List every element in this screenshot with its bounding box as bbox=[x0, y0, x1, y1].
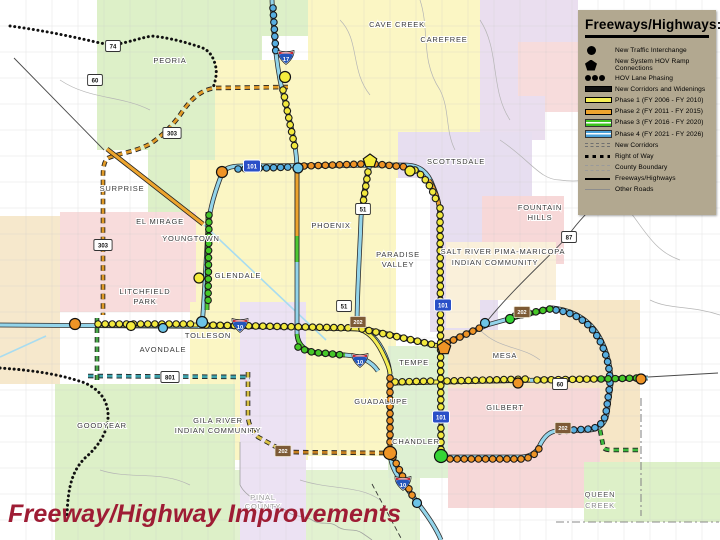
county-legend-symbol bbox=[585, 165, 615, 171]
interchange-l202-red2 bbox=[506, 315, 515, 324]
legend-item-label: County Boundary bbox=[615, 164, 667, 171]
pentagon-swatch bbox=[585, 60, 597, 71]
minor-road bbox=[650, 300, 720, 315]
dbl-swatch bbox=[585, 119, 612, 127]
legend-item-label: Phase 1 (FY 2006 - FY 2010) bbox=[615, 97, 704, 104]
legend-item: County Boundary bbox=[585, 162, 711, 173]
circle-legend-symbol bbox=[585, 46, 615, 55]
interchange-l101-l202 bbox=[435, 450, 448, 463]
shield-part: 60 bbox=[557, 382, 564, 388]
place-label-fountain: FOUNTAIN bbox=[518, 203, 562, 212]
brown-shield-202: 202 bbox=[275, 446, 291, 457]
place-label-carefree: CAREFREE bbox=[420, 35, 467, 44]
dots-swatch bbox=[585, 155, 610, 159]
legend-item: Right of Way bbox=[585, 151, 711, 162]
legend-item-label: New Corridors and Widenings bbox=[615, 86, 705, 93]
place-label-youngtown: YOUNGTOWN bbox=[162, 234, 219, 243]
dbl-legend-symbol bbox=[585, 119, 615, 127]
brown-shield-202: 202 bbox=[514, 307, 530, 318]
legend-item: Phase 1 (FY 2006 - FY 2010) bbox=[585, 95, 711, 106]
shield-part: 87 bbox=[566, 235, 573, 241]
legend-item-label: Other Roads bbox=[615, 186, 653, 193]
interchange-l202-red1 bbox=[481, 319, 490, 328]
interchange-l101-nw bbox=[217, 167, 228, 178]
dashes-swatch bbox=[585, 142, 610, 149]
dashes-legend-symbol bbox=[585, 142, 615, 149]
place-label-surprise: SURPRISE bbox=[100, 184, 145, 193]
bar-legend-symbol bbox=[585, 109, 615, 115]
legend-item-label: Phase 3 (FY 2016 - FY 2020) bbox=[615, 119, 704, 126]
beads-legend-symbol bbox=[585, 75, 615, 81]
shield-part: 303 bbox=[98, 243, 109, 249]
brown-shield-202: 202 bbox=[555, 423, 571, 434]
interchange-us60-mid bbox=[513, 378, 523, 388]
interchange-i10-se bbox=[413, 499, 422, 508]
place-label-el-mirage: EL MIRAGE bbox=[136, 217, 184, 226]
far-west-peach bbox=[0, 216, 60, 384]
legend-item: Other Roads bbox=[585, 184, 711, 195]
place-label-peoria: PEORIA bbox=[153, 56, 186, 65]
legend-item: Phase 3 (FY 2016 - FY 2020) bbox=[585, 117, 711, 128]
place-label-queen: QUEEN bbox=[585, 490, 616, 499]
interchange-i10-l202 bbox=[384, 447, 397, 460]
state-shield-51: 51 bbox=[337, 301, 352, 312]
beads-swatch bbox=[585, 75, 605, 81]
shield-part: 801 bbox=[165, 375, 176, 381]
legend-item: New Corridors and Widenings bbox=[585, 84, 711, 95]
place-label-gila-river: GILA RIVER bbox=[193, 416, 243, 425]
shield-part: 101 bbox=[438, 303, 449, 309]
interchange-l101-west bbox=[194, 273, 204, 283]
place-label-goodyear: GOODYEAR bbox=[77, 421, 127, 430]
shield-part: 202 bbox=[278, 449, 287, 455]
dots-legend-symbol bbox=[585, 155, 615, 159]
legend-item-label: Freeways/Highways bbox=[615, 175, 676, 182]
bar-swatch bbox=[585, 109, 612, 115]
interchange-l101-pima bbox=[405, 166, 415, 176]
shield-part: 202 bbox=[517, 310, 526, 316]
state-shield-74: 74 bbox=[106, 41, 121, 52]
state-shield-87: 87 bbox=[562, 232, 577, 243]
legend-item: New Corridors bbox=[585, 140, 711, 151]
place-label-salt-river-pima-maricopa: SALT RIVER PIMA-MARICOPA bbox=[441, 247, 566, 256]
interchange-i10-w2 bbox=[127, 322, 136, 331]
legend-item: Phase 2 (FY 2011 - FY 2015) bbox=[585, 106, 711, 117]
place-label-indian-community: INDIAN COMMUNITY bbox=[175, 426, 262, 435]
state-shield-60: 60 bbox=[88, 75, 103, 86]
gilbert-area bbox=[448, 388, 600, 508]
thinner-swatch bbox=[585, 189, 610, 190]
legend-item-label: Phase 4 (FY 2021 - FY 2026) bbox=[615, 131, 704, 138]
interchange-l101-i10 bbox=[197, 317, 208, 328]
legend-rule bbox=[585, 35, 709, 38]
bar-swatch bbox=[585, 97, 612, 103]
thin-swatch bbox=[585, 178, 610, 180]
legend-panel: Freeways/Highways: New Traffic Interchan… bbox=[578, 10, 716, 215]
interchange-i17-north bbox=[280, 72, 291, 83]
legend-item: New System HOV Ramp Connections bbox=[585, 58, 711, 73]
shield-part: 202 bbox=[353, 320, 362, 326]
place-label-cave-creek: CAVE CREEK bbox=[369, 20, 425, 29]
bar-legend-symbol bbox=[585, 86, 615, 92]
interchange-i10-w3 bbox=[159, 324, 168, 333]
shield-part: 10 bbox=[357, 360, 363, 366]
legend-title: Freeways/Highways: bbox=[585, 17, 711, 32]
bar-swatch bbox=[585, 86, 612, 92]
legend-item-label: Right of Way bbox=[615, 153, 654, 160]
state-shield-303: 303 bbox=[163, 128, 181, 139]
place-label-scottsdale: SCOTTSDALE bbox=[427, 157, 485, 166]
county-swatch bbox=[585, 165, 610, 171]
shield-part: 202 bbox=[558, 426, 567, 432]
us60-east-thin bbox=[648, 373, 718, 377]
place-label-indian-community: INDIAN COMMUNITY bbox=[452, 258, 539, 267]
shield-part: 17 bbox=[283, 57, 289, 63]
place-label-chandler: CHANDLER bbox=[392, 437, 440, 446]
state-shield-801: 801 bbox=[161, 372, 179, 383]
loop-shield-101: 101 bbox=[433, 411, 450, 423]
place-label-creek: CREEK bbox=[585, 501, 615, 510]
thin-legend-symbol bbox=[585, 178, 615, 180]
loop-shield-101: 101 bbox=[435, 299, 452, 311]
place-label-park: PARK bbox=[133, 297, 156, 306]
legend-item: New Traffic Interchange bbox=[585, 43, 711, 58]
legend-item-label: HOV Lane Phasing bbox=[615, 75, 673, 82]
place-label-avondale: AVONDALE bbox=[140, 345, 187, 354]
shield-part: 51 bbox=[360, 207, 367, 213]
legend-item: HOV Lane Phasing bbox=[585, 73, 711, 84]
state-shield-60: 60 bbox=[553, 379, 568, 390]
place-label-hills: HILLS bbox=[528, 213, 553, 222]
legend-item: Phase 4 (FY 2021 - FY 2026) bbox=[585, 128, 711, 139]
place-label-tempe: TEMPE bbox=[399, 358, 429, 367]
loop-shield-101: 101 bbox=[244, 160, 261, 172]
place-label-gilbert: GILBERT bbox=[486, 403, 524, 412]
slide: 7460303303101175151101101101010202202202… bbox=[0, 0, 720, 540]
shield-part: 101 bbox=[247, 164, 258, 170]
place-label-tolleson: TOLLESON bbox=[185, 331, 231, 340]
page-title: Freeway/Highway Improvements bbox=[8, 500, 401, 529]
legend-rows: New Traffic InterchangeNew System HOV Ra… bbox=[585, 43, 711, 196]
shield-part: 51 bbox=[341, 304, 348, 310]
place-label-paradise: PARADISE bbox=[376, 250, 420, 259]
bar-legend-symbol bbox=[585, 97, 615, 103]
place-label-phoenix: PHOENIX bbox=[311, 221, 350, 230]
state-shield-303: 303 bbox=[94, 240, 112, 251]
state-shield-51: 51 bbox=[356, 204, 371, 215]
place-label-litchfield: LITCHFIELD bbox=[120, 287, 171, 296]
dbl-swatch bbox=[585, 130, 612, 138]
shield-part: 60 bbox=[92, 78, 99, 84]
interchange-i17-l101 bbox=[293, 163, 303, 173]
dbl-legend-symbol bbox=[585, 130, 615, 138]
thinner-legend-symbol bbox=[585, 189, 615, 190]
shield-part: 303 bbox=[167, 131, 178, 137]
pentagon-legend-symbol bbox=[585, 60, 615, 71]
interchange-us60-east bbox=[636, 374, 646, 384]
legend-item-label: New Traffic Interchange bbox=[615, 47, 687, 54]
shield-part: 74 bbox=[110, 44, 117, 50]
legend-item-label: Phase 2 (FY 2011 - FY 2015) bbox=[615, 108, 703, 115]
interchange-i10-west bbox=[70, 319, 81, 330]
shield-part: 10 bbox=[237, 325, 243, 331]
place-label-valley: VALLEY bbox=[382, 260, 415, 269]
west-pink-area bbox=[60, 212, 196, 312]
legend-item-label: New Corridors bbox=[615, 142, 658, 149]
place-label-guadalupe: GUADALUPE bbox=[354, 397, 407, 406]
hov-beads-orange bbox=[304, 164, 363, 166]
place-label-glendale: GLENDALE bbox=[215, 271, 261, 280]
hov-beads-yellow bbox=[395, 381, 434, 382]
shield-part: 101 bbox=[436, 415, 447, 421]
brown-shield-202: 202 bbox=[350, 317, 366, 328]
legend-item-label: New System HOV Ramp Connections bbox=[615, 58, 711, 72]
legend-item: Freeways/Highways bbox=[585, 173, 711, 184]
shield-part: 10 bbox=[400, 483, 406, 489]
circle-swatch bbox=[587, 46, 596, 55]
place-label-mesa: MESA bbox=[493, 351, 517, 360]
